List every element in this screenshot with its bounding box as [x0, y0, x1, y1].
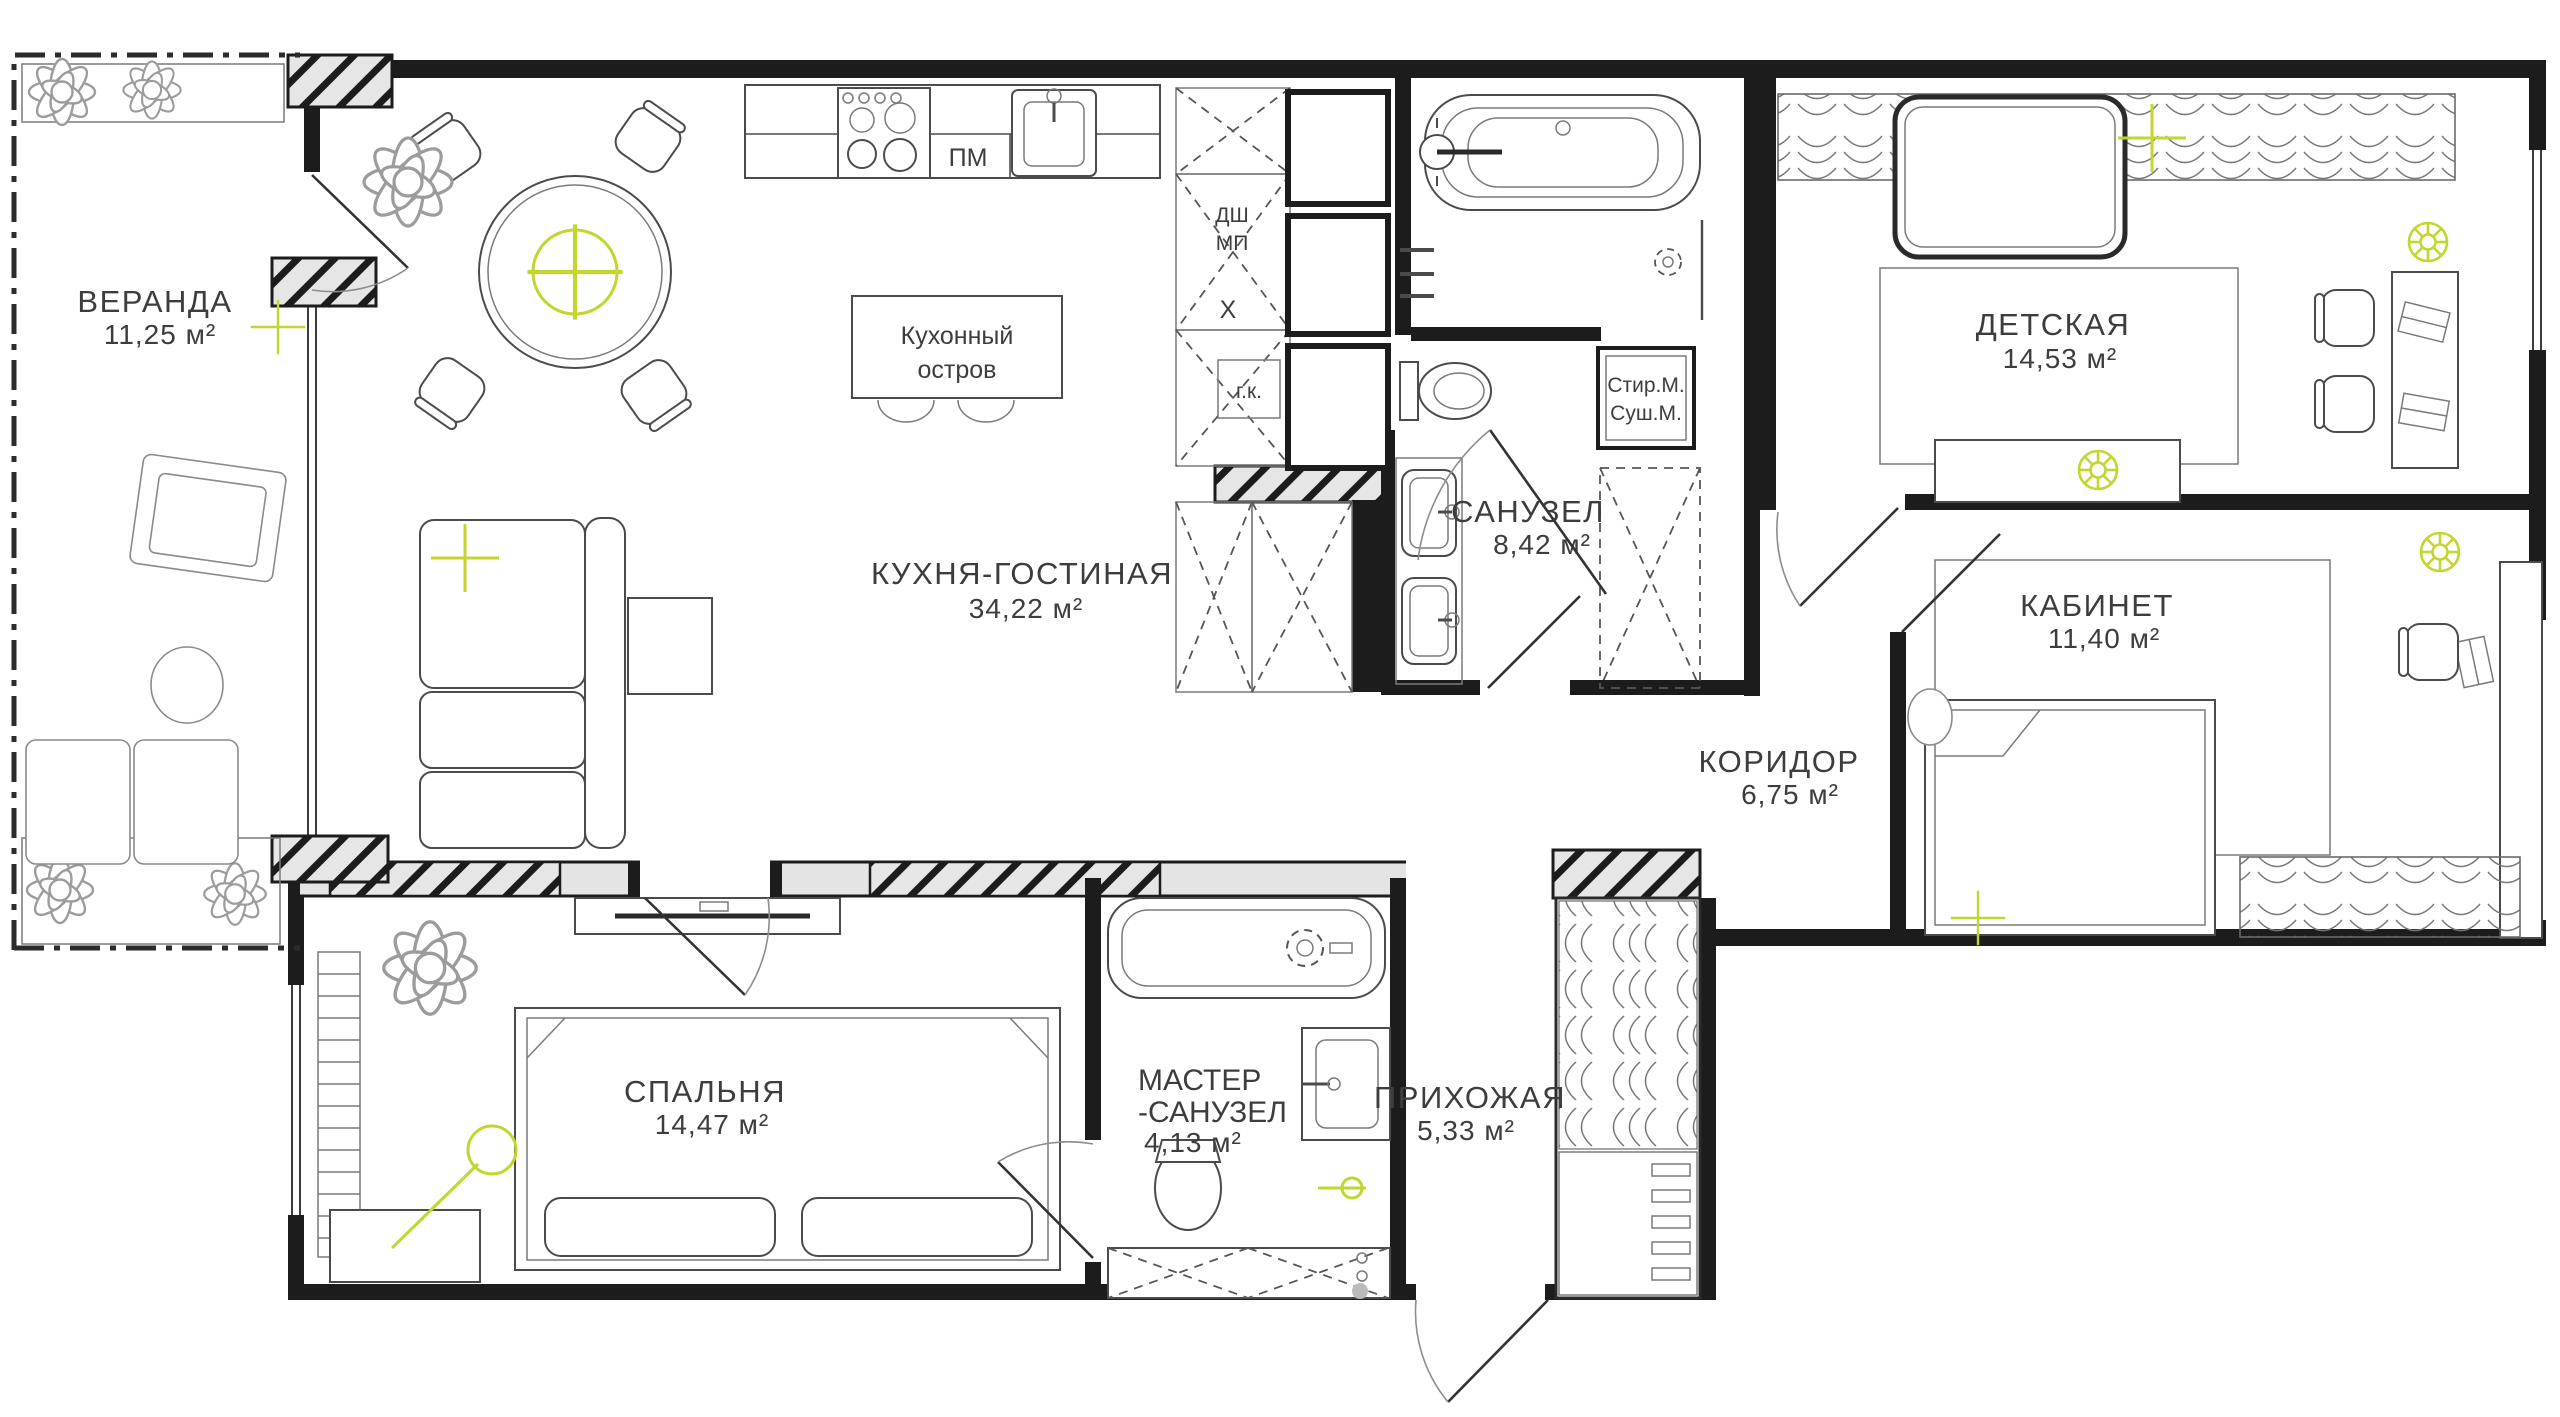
cabinet-label-mp: МП: [1216, 232, 1249, 255]
children-crib: [1895, 97, 2125, 257]
shaft-box: [1288, 216, 1388, 334]
stove: [838, 88, 930, 178]
room-master-bath: МАСТЕР -САНУЗЕЛ 4,13 м²: [1108, 898, 1390, 1299]
tv-console: [575, 898, 840, 934]
room-hallway: ПРИХОЖАЯ 5,33 м²: [1374, 898, 1700, 1298]
floor-cushion: [134, 740, 238, 864]
kitchen-sink: [1012, 89, 1096, 176]
bedroom-bed: [515, 1008, 1060, 1270]
desk-chair: [2399, 624, 2458, 680]
hallway-wardrobe: [1556, 898, 1700, 1298]
room-bathroom: Стир.М. Суш.М. САНУЗЕЛ 8,42 м²: [1396, 95, 1702, 688]
children-desk: [2315, 272, 2458, 468]
master-bottom-cabinet: [1108, 1248, 1390, 1299]
room-label-office: КАБИНЕТ: [2020, 588, 2174, 623]
room-label-bedroom: СПАЛЬНЯ: [624, 1074, 786, 1109]
room-children: ДЕТСКАЯ 14,53 м²: [1778, 94, 2458, 502]
room-area-office: 11,40 м²: [2048, 623, 2160, 654]
room-bedroom: СПАЛЬНЯ 14,47 м²: [318, 898, 1060, 1282]
room-label-hallway: ПРИХОЖАЯ: [1374, 1080, 1566, 1115]
room-label-kitchen-living: КУХНЯ-ГОСТИНАЯ: [871, 556, 1173, 591]
room-label-veranda: ВЕРАНДА: [77, 284, 232, 319]
wardrobe: [2240, 857, 2520, 937]
desk-chair: [2315, 290, 2374, 346]
room-area-corridor: 6,75 м²: [1741, 779, 1839, 810]
room-area-master: 4,13 м²: [1144, 1127, 1242, 1158]
plant-icon: [27, 857, 93, 923]
plant-icon: [384, 922, 476, 1014]
cabinet-label-x: X: [1220, 296, 1237, 324]
room-area-veranda: 11,25 м²: [104, 319, 216, 350]
shower-zone: [1600, 468, 1700, 688]
room-label-bathroom: САНУЗЕЛ: [1451, 494, 1605, 529]
floor-plan-canvas: ВЕРАНДА 11,25 м² ПМ: [0, 0, 2560, 1417]
washer-dryer: Стир.М. Суш.М.: [1598, 348, 1694, 448]
bedroom-bench: [330, 1210, 480, 1282]
toilet: [1400, 362, 1491, 420]
washer-label: Стир.М.: [1607, 374, 1684, 397]
room-office: КАБИНЕТ 11,40 м²: [1908, 533, 2542, 945]
children-bench: [1935, 440, 2180, 502]
plant-icon: [29, 59, 95, 125]
room-label-master-2: -САНУЗЕЛ: [1138, 1096, 1287, 1129]
room-label-master-1: МАСТЕР: [1138, 1064, 1261, 1097]
room-veranda: ВЕРАНДА 11,25 м²: [14, 55, 300, 950]
plant-icon: [204, 863, 266, 925]
double-sink: [1396, 458, 1462, 684]
wall-light-icon: [1318, 1178, 1366, 1198]
desk-chair: [2315, 376, 2374, 432]
floor-plan-svg: ВЕРАНДА 11,25 м² ПМ: [0, 0, 2560, 1417]
dishwasher-label: ПМ: [949, 144, 988, 172]
plant-icon: [364, 138, 452, 226]
room-corridor: КОРИДОР 6,75 м²: [1698, 744, 1859, 810]
room-label-children: ДЕТСКАЯ: [1976, 307, 2131, 342]
floor-drain-icon: [1655, 249, 1681, 275]
veranda-pouf: [151, 647, 223, 723]
shaft-box: [1288, 92, 1388, 204]
dining-chair: [410, 353, 490, 433]
veranda-armchair: [129, 454, 287, 583]
dining-chair: [616, 355, 696, 435]
master-bathtub: [1108, 898, 1385, 998]
room-area-kitchen-living: 34,22 м²: [969, 593, 1083, 624]
shaft-box: [1288, 346, 1388, 468]
light-wheel-icon: [2421, 533, 2459, 571]
room-area-children: 14,53 м²: [2003, 343, 2117, 374]
hot-closet-label: г.к.: [1236, 380, 1262, 403]
room-area-bathroom: 8,42 м²: [1493, 529, 1591, 560]
island-label-1: Кухонный: [901, 322, 1014, 350]
light-wheel-icon: [2409, 223, 2447, 261]
office-side-table: [1908, 689, 1952, 745]
office-bed: [1925, 700, 2215, 935]
floor-cushion: [26, 740, 130, 864]
room-label-corridor: КОРИДОР: [1698, 744, 1859, 779]
cabinet-label-dsh: ДШ: [1215, 204, 1248, 227]
room-area-hallway: 5,33 м²: [1417, 1115, 1515, 1146]
ceiling-light-icon: [251, 300, 305, 354]
dining-chair: [610, 97, 690, 177]
dining-table: [406, 97, 696, 435]
kitchen-island: Кухонный остров: [852, 296, 1062, 422]
room-kitchen-living: ПМ Кухонный остров: [251, 85, 1173, 848]
dryer-label: Суш.М.: [1610, 402, 1682, 425]
island-label-2: остров: [918, 356, 997, 384]
plant-icon: [123, 61, 180, 118]
room-area-bedroom: 14,47 м²: [655, 1109, 769, 1140]
